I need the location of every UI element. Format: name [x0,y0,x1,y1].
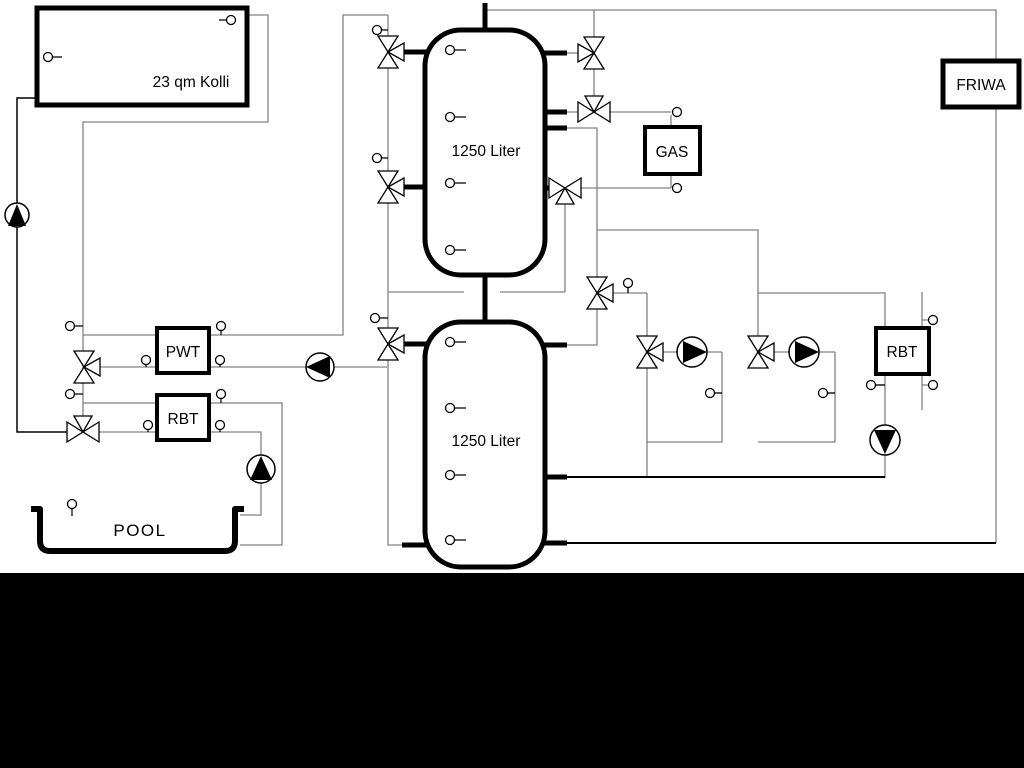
temperature-sensor-icon [446,113,455,122]
rbt-right-label: RBT [887,344,919,361]
pump-icon [870,425,900,455]
temperature-sensor-icon [216,356,225,365]
friwa-station-box: FRIWA [943,61,1019,107]
buffer-tank-bottom-label: 1250 Liter [452,433,521,450]
pump-icon [247,455,275,483]
buffer-tank-bottom: 1250 Liter [425,322,545,567]
bottom-black-band [0,573,1024,768]
solar-collector-label: 23 qm Kolli [153,74,230,91]
temperature-sensor-icon [142,356,151,365]
temperature-sensor-icon [371,314,380,323]
temperature-sensor-icon [446,46,455,55]
temperature-sensor-icon [217,322,226,331]
buffer-tank-top-label: 1250 Liter [452,143,521,160]
temperature-sensor-icon [227,16,236,25]
temperature-sensor-icon [373,154,382,163]
rbt-pool-heat-exchanger-box: RBT [157,395,209,440]
temperature-sensor-icon [624,279,633,288]
pump-icon [5,203,29,227]
temperature-sensor-icon [373,26,382,35]
temperature-sensor-icon [66,390,75,399]
temperature-sensor-icon [68,500,77,509]
friwa-station-label: FRIWA [956,77,1006,94]
pwt-heat-exchanger-box: PWT [157,328,209,373]
rbt-right-heat-exchanger-box: RBT [876,328,929,374]
temperature-sensor-icon [446,471,455,480]
temperature-sensor-icon [446,536,455,545]
solar-collector-box: 23 qm Kolli [37,8,247,105]
gas-boiler-box: GAS [645,127,700,174]
temperature-sensor-icon [446,404,455,413]
temperature-sensor-icon [446,179,455,188]
buffer-tank-top: 1250 Liter [425,30,545,275]
pwt-label: PWT [166,344,201,361]
hydraulic-schematic: 1250 Liter 1250 Liter 23 qm Kolli GAS FR… [0,0,1024,768]
pump-icon [306,353,334,381]
temperature-sensor-icon [66,322,75,331]
pump-icon [789,337,819,367]
schematic-canvas: 1250 Liter 1250 Liter 23 qm Kolli GAS FR… [0,0,1024,768]
temperature-sensor-icon [44,53,53,62]
temperature-sensor-icon [446,338,455,347]
temperature-sensor-icon [867,381,876,390]
temperature-sensor-icon [706,389,715,398]
rbt-pool-label: RBT [168,411,200,428]
temperature-sensor-icon [446,246,455,255]
temperature-sensor-icon [673,184,682,193]
gas-boiler-label: GAS [656,144,689,161]
temperature-sensor-icon [217,390,226,399]
temperature-sensor-icon [216,421,225,430]
pump-icon [677,337,707,367]
temperature-sensor-icon [673,108,682,117]
temperature-sensor-icon [819,389,828,398]
temperature-sensor-icon [144,421,153,430]
pool-label: POOL [113,521,166,540]
temperature-sensor-icon [929,316,938,325]
temperature-sensor-icon [929,381,938,390]
